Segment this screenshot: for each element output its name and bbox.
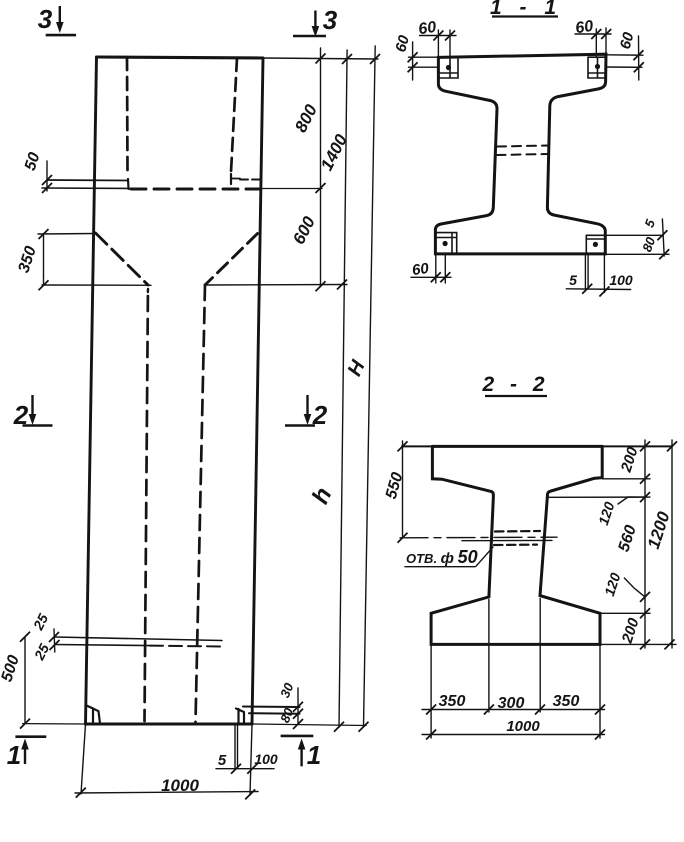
svg-text:5: 5 [569,272,577,288]
svg-text:1000: 1000 [506,718,540,735]
svg-text:25: 25 [29,611,51,633]
svg-text:50: 50 [22,150,44,172]
svg-text:80: 80 [639,234,658,253]
svg-text:2: 2 [312,400,328,430]
svg-text:1: 1 [307,740,321,770]
svg-text:800: 800 [291,101,321,135]
svg-text:1: 1 [7,740,21,770]
svg-text:60: 60 [617,30,638,51]
svg-text:300: 300 [498,695,525,712]
svg-text:120: 120 [601,571,624,598]
svg-text:1200: 1200 [644,509,674,551]
svg-text:350: 350 [553,693,580,710]
svg-text:100: 100 [609,272,633,288]
svg-text:h: h [307,483,338,508]
svg-text:H: H [344,357,370,380]
svg-text:2 - 2: 2 - 2 [481,373,549,396]
svg-text:350: 350 [439,693,466,710]
svg-text:1000: 1000 [161,776,199,795]
svg-text:60: 60 [417,19,437,38]
svg-text:200: 200 [618,615,642,646]
svg-text:5: 5 [218,752,227,769]
svg-text:560: 560 [616,523,640,554]
svg-text:3: 3 [323,5,338,35]
svg-text:60: 60 [392,33,413,54]
svg-text:350: 350 [16,244,40,275]
svg-text:200: 200 [617,444,641,475]
svg-text:3: 3 [38,4,53,34]
svg-text:25: 25 [30,641,52,663]
svg-text:100: 100 [254,751,278,767]
svg-text:600: 600 [289,213,319,247]
svg-text:80: 80 [277,705,297,725]
svg-text:60: 60 [574,18,594,37]
svg-text:60: 60 [411,260,431,279]
svg-text:30: 30 [277,680,297,700]
svg-text:120: 120 [595,500,618,527]
svg-text:5: 5 [641,217,658,230]
svg-text:ОТВ. ф 50: ОТВ. ф 50 [406,547,478,567]
svg-text:500: 500 [0,653,23,684]
